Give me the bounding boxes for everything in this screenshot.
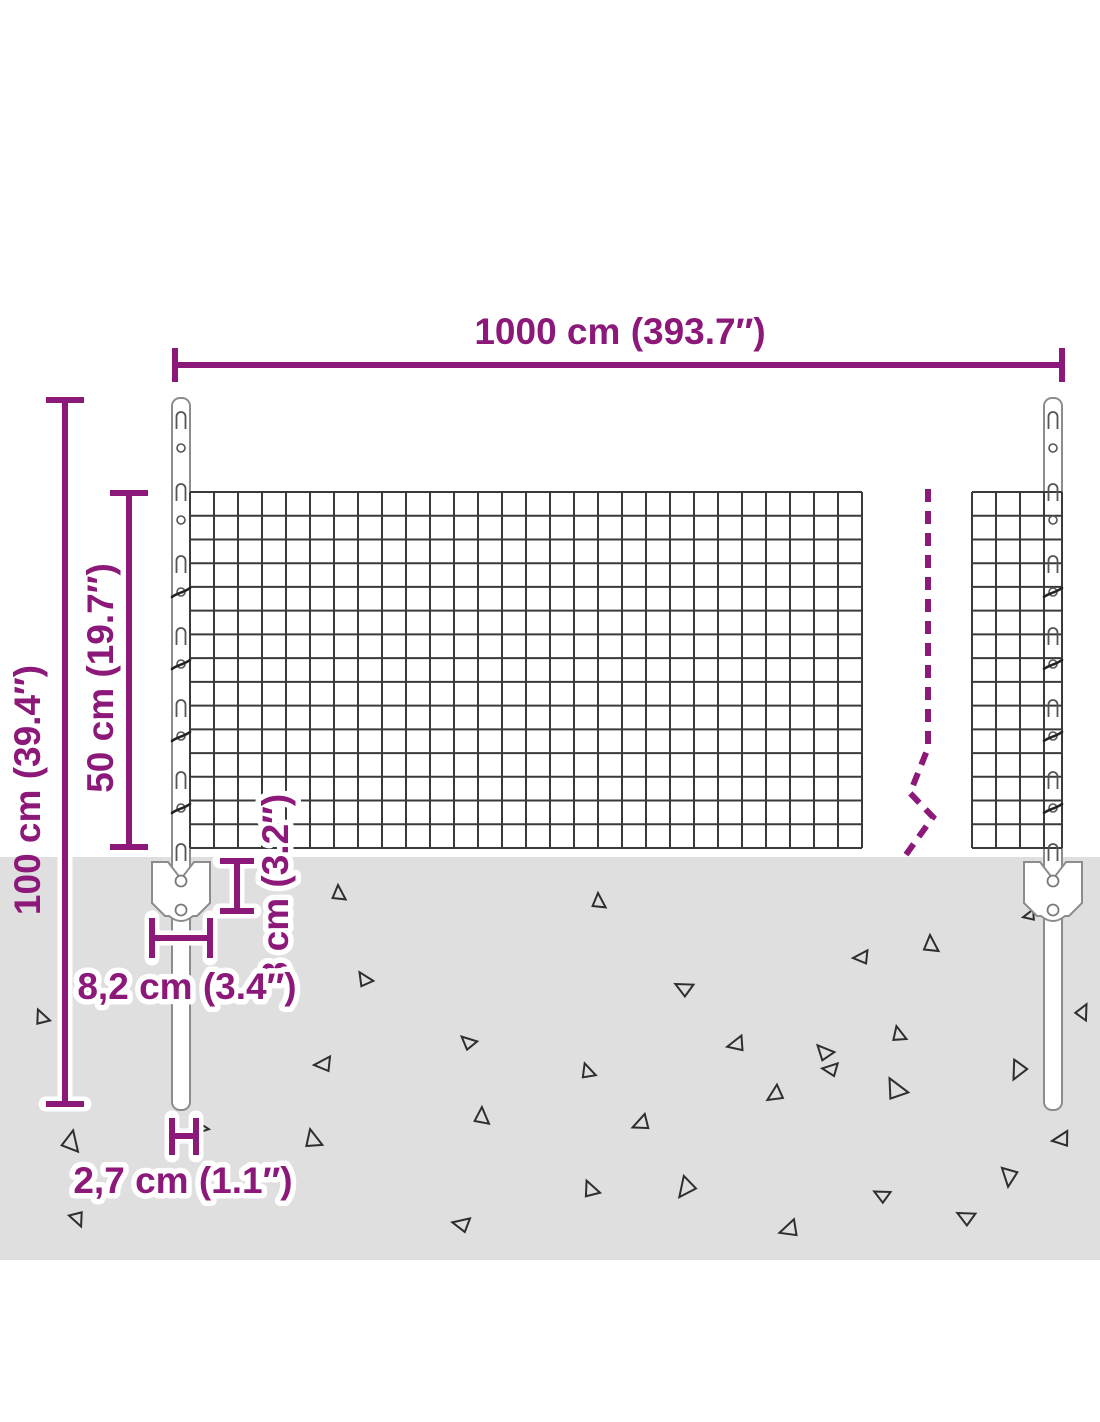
post-details: [172, 412, 1062, 861]
fence-dimension-diagram: 1000 cm (393.7″) 100 cm (39.4″) 50 cm (1…: [0, 0, 1100, 1422]
diagram-page: 1000 cm (393.7″) 100 cm (39.4″) 50 cm (1…: [0, 0, 1100, 1422]
mesh-height-label: 50 cm (19.7″): [80, 563, 121, 793]
total-height-label: 100 cm (39.4″): [7, 665, 48, 915]
anchor-plate-width-label: 8,2 cm (3.4″): [77, 966, 296, 1007]
post-width-label: 2,7 cm (1.1″): [73, 1160, 292, 1201]
total-width-label: 1000 cm (393.7″): [474, 311, 765, 352]
break-line: [905, 489, 933, 856]
anchor-plate-height-label: 8 cm (3.2″): [255, 794, 296, 982]
